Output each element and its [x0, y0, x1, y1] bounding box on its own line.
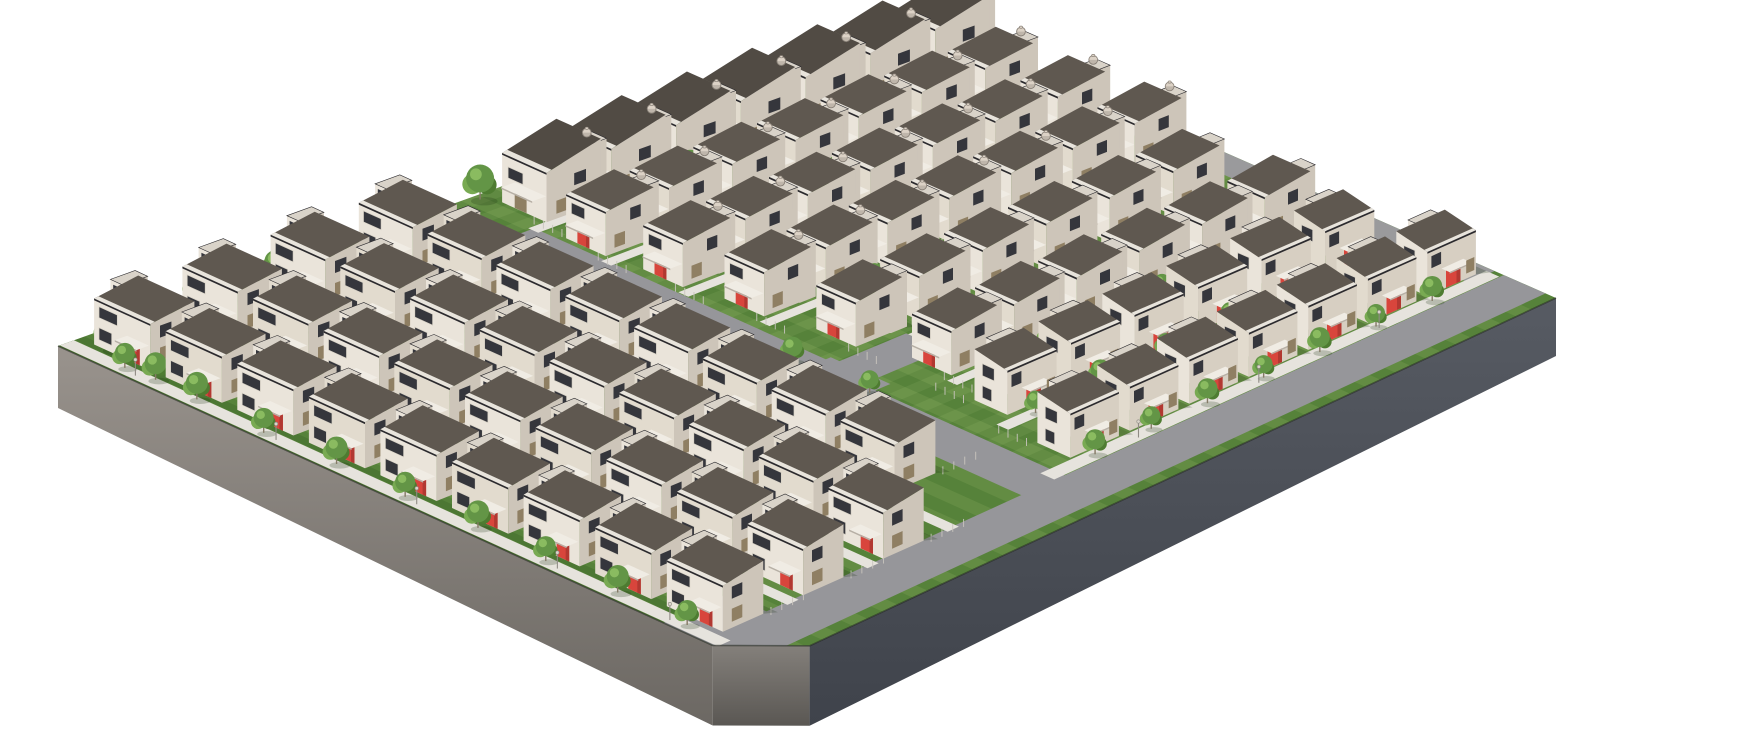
site-plan-svg	[0, 0, 1762, 730]
architectural-render	[0, 0, 1762, 730]
